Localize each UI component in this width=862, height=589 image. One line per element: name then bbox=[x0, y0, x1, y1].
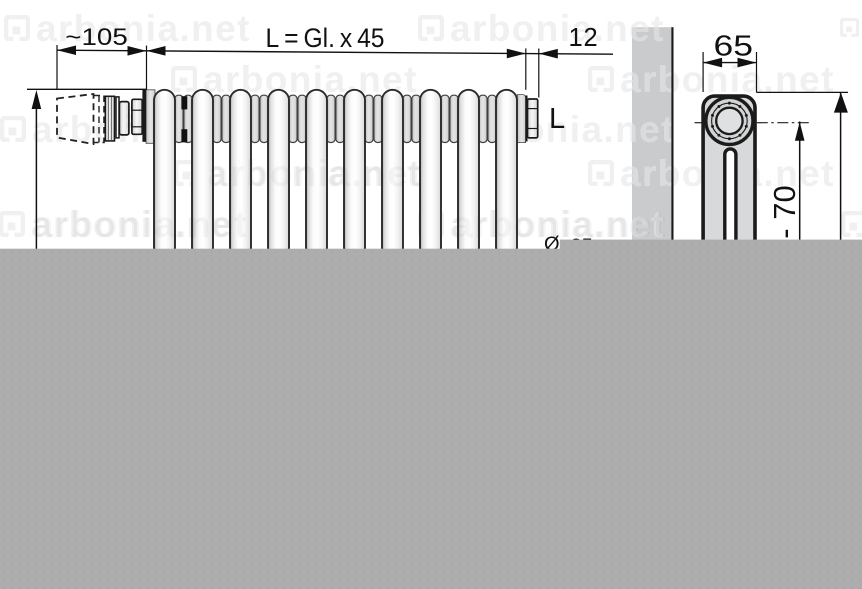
svg-text:arbonia.net: arbonia.net bbox=[208, 153, 423, 194]
svg-text:arbonia.net: arbonia.net bbox=[452, 204, 667, 245]
svg-text:arbonia.net: arbonia.net bbox=[33, 204, 248, 245]
svg-text:12: 12 bbox=[569, 24, 599, 52]
svg-text:~105: ~105 bbox=[65, 24, 128, 51]
svg-text:L: L bbox=[549, 103, 565, 135]
svg-text:- 70: - 70 bbox=[767, 185, 802, 238]
svg-text:L = Gl. x 45: L = Gl. x 45 bbox=[266, 23, 385, 53]
svg-text:65: 65 bbox=[714, 31, 754, 63]
